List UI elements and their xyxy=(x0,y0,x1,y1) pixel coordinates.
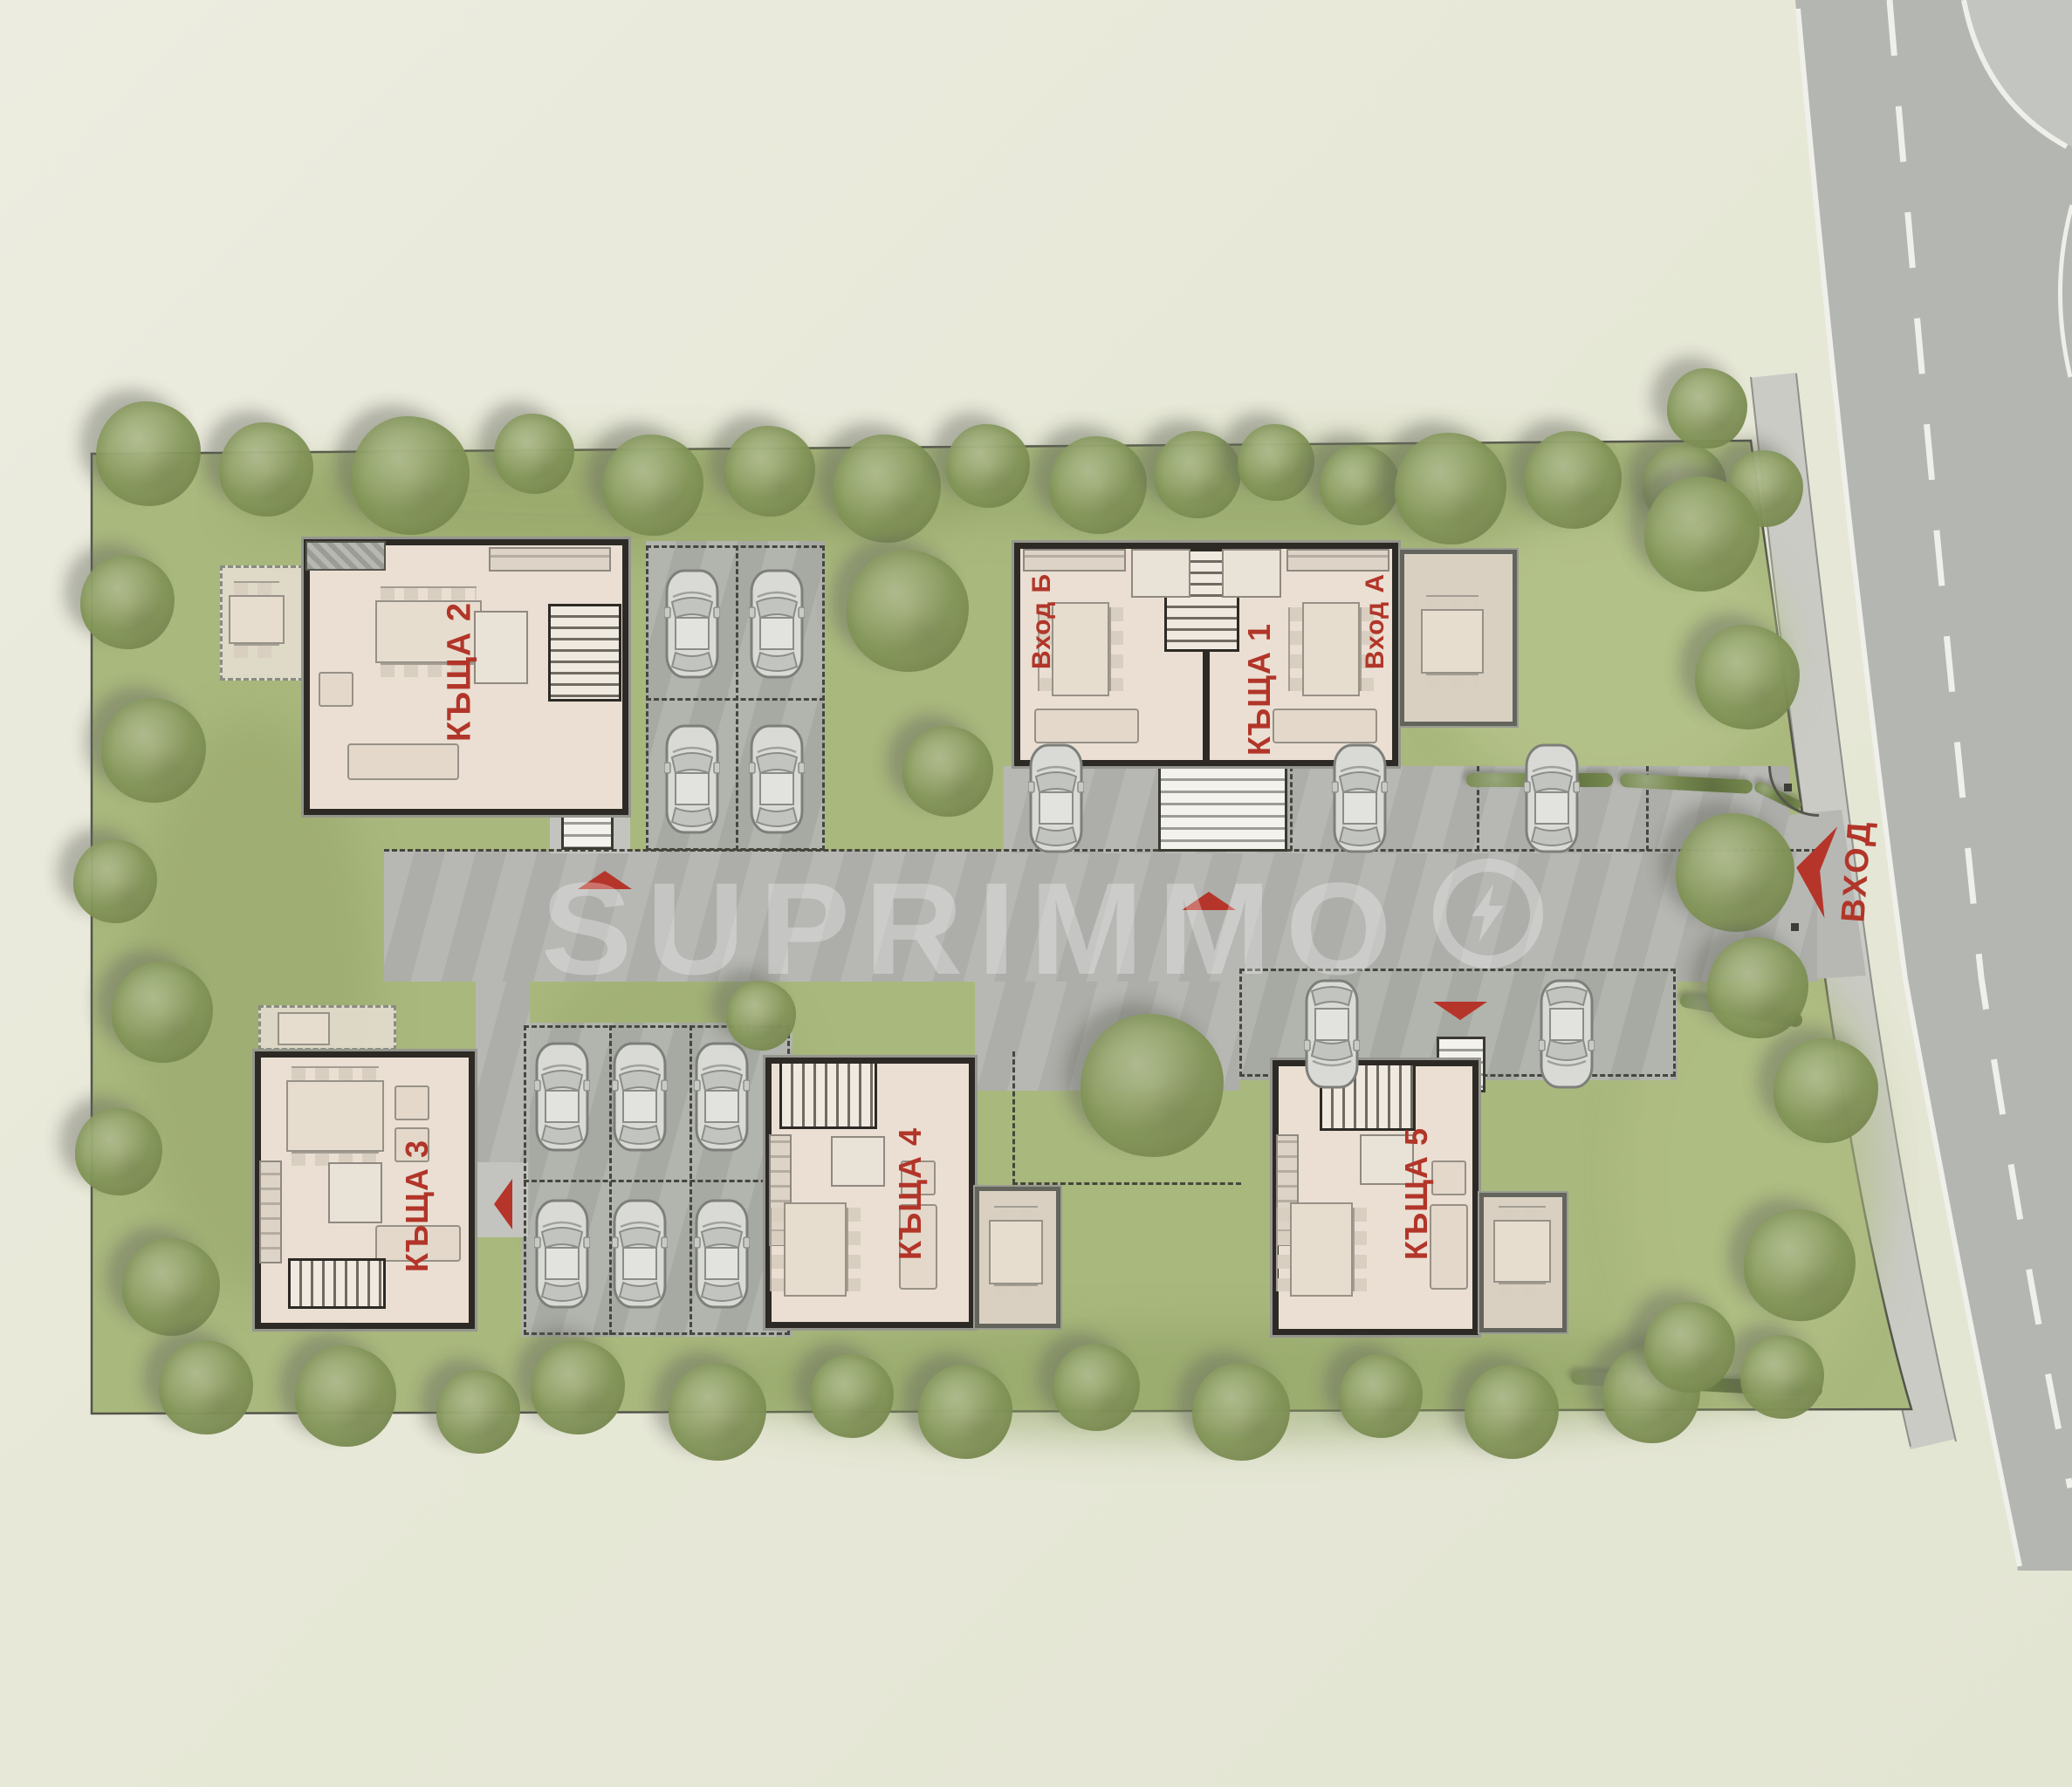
tree xyxy=(295,1345,396,1447)
parked-car xyxy=(1304,977,1360,1091)
house-3-terrace-table xyxy=(278,1012,330,1045)
parked-car xyxy=(1332,742,1388,855)
tree xyxy=(351,416,470,535)
parking-divider xyxy=(1012,1051,1015,1184)
house-1a-dining-table xyxy=(1302,602,1360,696)
tree xyxy=(1524,431,1622,529)
entrance-label: ВХОД xyxy=(1835,818,1879,923)
tree xyxy=(669,1363,766,1461)
house-1b-dining-table xyxy=(1052,602,1109,696)
house-3-armchair-1 xyxy=(395,1085,429,1120)
fence-post-2 xyxy=(1791,923,1799,931)
house-3-dining-table xyxy=(286,1080,384,1152)
house-2-roof-hatch xyxy=(305,541,386,571)
house-1b-sofa xyxy=(1034,709,1139,743)
tree xyxy=(726,981,796,1051)
tree xyxy=(436,1370,520,1454)
house5-arrow-down-icon xyxy=(1433,1002,1487,1020)
tree xyxy=(101,698,206,803)
tree xyxy=(1053,1344,1140,1431)
parked-car xyxy=(1028,742,1084,855)
tree xyxy=(1465,1365,1559,1459)
tree xyxy=(1676,813,1794,932)
house-5-label: КЪЩА 5 xyxy=(1398,1127,1435,1260)
driveway-arrow-up-icon xyxy=(578,871,632,889)
parked-car xyxy=(534,1040,590,1154)
tree xyxy=(1320,445,1400,525)
house3-arrow-left-icon xyxy=(494,1179,512,1229)
house-3-bathroom xyxy=(328,1162,382,1223)
parked-car xyxy=(749,567,805,681)
tree xyxy=(1049,436,1147,534)
parked-car xyxy=(612,1197,668,1311)
tree xyxy=(946,424,1030,508)
tree xyxy=(96,401,201,506)
parked-car xyxy=(664,722,720,836)
house-4-stairs xyxy=(779,1061,877,1129)
house-1a-kitchen-counter xyxy=(1286,549,1389,572)
house-3-kitchen-counter xyxy=(259,1161,282,1263)
house1-entry-stairs xyxy=(1158,766,1287,852)
tree xyxy=(159,1340,253,1434)
parking-divider xyxy=(1290,766,1293,851)
tree xyxy=(833,435,941,543)
parking-divider xyxy=(736,545,738,851)
house-2-kitchen-counter xyxy=(489,547,611,572)
tree xyxy=(112,962,213,1063)
house-2-armchair xyxy=(319,672,353,707)
tree xyxy=(1339,1354,1423,1438)
tree xyxy=(494,414,574,494)
parked-car xyxy=(534,1197,590,1311)
site-plan-canvas: КЪЩА 2 Вход Б КЪЩА 1 Вход А КЪЩА 3 КЪЩА … xyxy=(0,0,2072,1787)
tree xyxy=(219,422,313,517)
house-1a-sofa xyxy=(1273,709,1377,743)
tree xyxy=(531,1340,625,1434)
tree xyxy=(1395,433,1506,544)
house-5-terrace-table xyxy=(1493,1220,1551,1283)
house-1-label: КЪЩА 1 xyxy=(1241,623,1278,756)
house-5-dining-table xyxy=(1290,1202,1353,1297)
house-3-label: КЪЩА 3 xyxy=(399,1140,436,1272)
tree xyxy=(602,435,703,536)
fence-post-1 xyxy=(1784,784,1792,791)
house-4-dining-table xyxy=(784,1202,847,1297)
house-2-stairs xyxy=(548,604,621,702)
tree xyxy=(1744,1209,1856,1321)
parking-divider xyxy=(524,1180,790,1182)
tree xyxy=(1667,368,1747,448)
tree xyxy=(75,1108,162,1195)
tree xyxy=(1081,1014,1224,1157)
tree xyxy=(1644,476,1760,592)
house-2-label: КЪЩА 2 xyxy=(442,602,479,742)
house-4-label: КЪЩА 4 xyxy=(892,1127,929,1260)
parked-car xyxy=(1524,742,1580,855)
tree xyxy=(1154,431,1241,518)
parked-car xyxy=(1539,977,1595,1091)
tree xyxy=(724,426,815,517)
tree xyxy=(902,726,993,817)
tree xyxy=(122,1238,220,1336)
parked-car xyxy=(612,1040,668,1154)
house-1b-kitchen-counter xyxy=(1023,549,1126,572)
tree xyxy=(80,555,175,649)
tree xyxy=(847,550,969,672)
parked-car xyxy=(664,567,720,681)
house-5-sofa xyxy=(1430,1204,1468,1290)
house-2-terrace-table xyxy=(229,595,285,644)
house-1-terrace-table xyxy=(1421,609,1484,674)
house-1a-bathroom xyxy=(1222,549,1281,598)
tree xyxy=(810,1354,894,1438)
house-4-bathroom xyxy=(831,1136,885,1187)
house-1b-bathroom xyxy=(1131,549,1190,598)
house-1-entrance-a-label: Вход А xyxy=(1361,573,1390,669)
tree xyxy=(918,1365,1012,1459)
tree xyxy=(73,839,157,923)
house-4-terrace-table xyxy=(989,1220,1043,1284)
parked-car xyxy=(694,1197,750,1311)
house-2-bathroom xyxy=(474,611,528,684)
tree xyxy=(1644,1302,1735,1393)
tree xyxy=(1192,1363,1290,1461)
driveway-arrow-up-icon xyxy=(1182,892,1236,910)
house-2-sofa xyxy=(347,743,459,780)
parking-divider xyxy=(1012,1182,1241,1185)
parked-car xyxy=(694,1040,750,1154)
tree xyxy=(1695,625,1800,729)
parked-car xyxy=(749,722,805,836)
house-3-stairs xyxy=(288,1258,386,1309)
tree xyxy=(1238,424,1314,501)
tree xyxy=(1707,937,1808,1038)
tree xyxy=(1740,1335,1824,1419)
parking-divider xyxy=(690,1025,692,1335)
house-5-armchair xyxy=(1431,1161,1466,1195)
house-1-entrance-b-label: Вход Б xyxy=(1027,573,1057,669)
tree xyxy=(1774,1038,1878,1143)
